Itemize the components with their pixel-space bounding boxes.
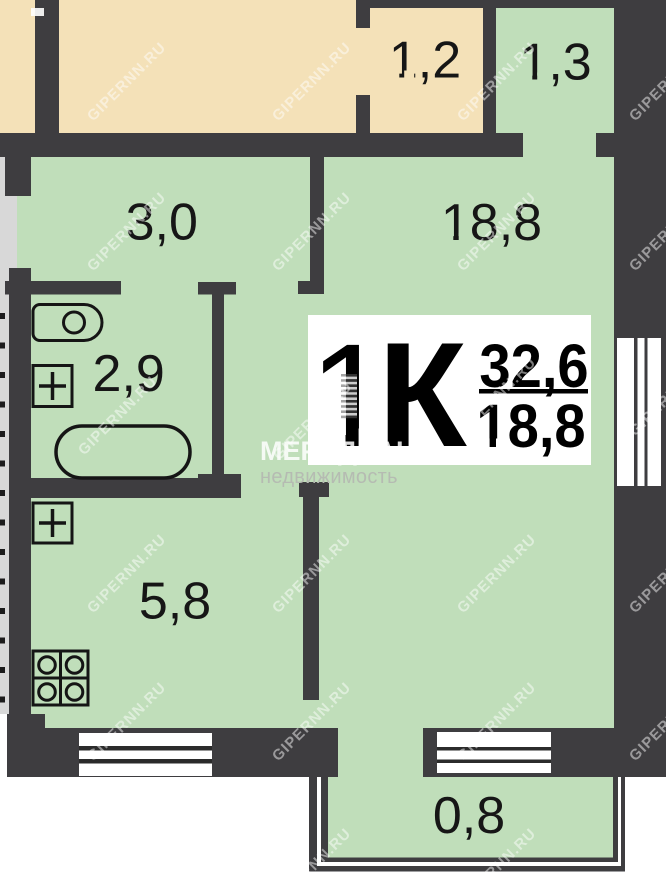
svg-text:1,2: 1,2 — [389, 32, 461, 90]
svg-text:5,8: 5,8 — [139, 573, 211, 631]
svg-text:недвижимость: недвижимость — [260, 466, 398, 488]
svg-text:0,8: 0,8 — [433, 787, 505, 845]
